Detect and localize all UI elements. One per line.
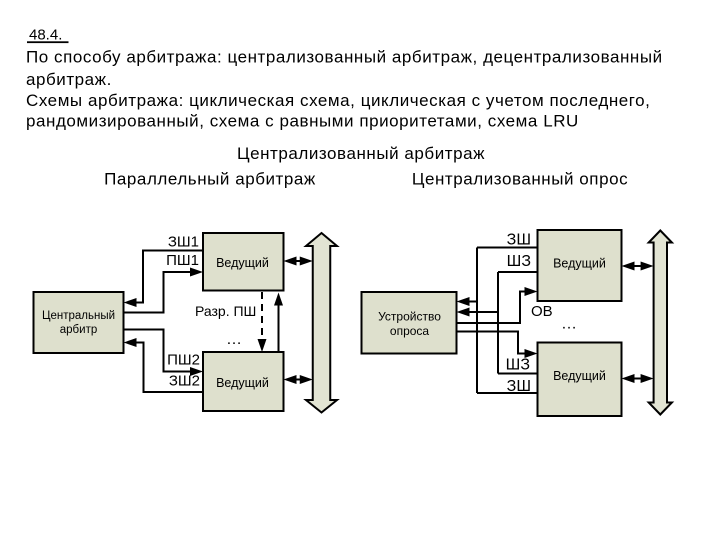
svg-text:…: …: [226, 331, 242, 348]
svg-text:Разр. ПШ: Разр. ПШ: [195, 303, 256, 319]
svg-text:Параллельный арбитраж: Параллельный арбитраж: [104, 170, 316, 189]
svg-text:ЗШ: ЗШ: [507, 378, 531, 395]
svg-text:Ведущий: Ведущий: [553, 257, 606, 271]
svg-text:ПШ2: ПШ2: [167, 352, 200, 369]
svg-text:ШЗ: ШЗ: [507, 253, 531, 270]
svg-text:По способу арбитража: централи: По способу арбитража: централизованный а…: [26, 48, 663, 67]
svg-text:…: …: [561, 316, 577, 333]
svg-text:Ведущий: Ведущий: [216, 376, 269, 390]
svg-text:арбитр: арбитр: [60, 324, 97, 336]
svg-text:48.4.: 48.4.: [29, 27, 62, 44]
svg-text:ОВ: ОВ: [531, 303, 553, 320]
svg-text:ПШ1: ПШ1: [166, 252, 199, 269]
svg-text:арбитраж.: арбитраж.: [26, 70, 112, 89]
svg-text:Устройство: Устройство: [378, 310, 441, 324]
svg-text:рандомизированный, схема с рав: рандомизированный, схема с равными приор…: [26, 112, 579, 131]
svg-text:ЗШ2: ЗШ2: [169, 373, 200, 390]
svg-text:Схемы арбитража: циклическая с: Схемы арбитража: циклическая схема, цикл…: [26, 91, 650, 110]
svg-text:Централизованный опрос: Централизованный опрос: [412, 170, 628, 189]
svg-text:ЗШ1: ЗШ1: [168, 234, 199, 251]
svg-text:опроса: опроса: [390, 324, 430, 338]
svg-text:Центральный: Центральный: [42, 310, 115, 322]
svg-text:Централизованный арбитраж: Централизованный арбитраж: [237, 144, 485, 163]
svg-text:ШЗ: ШЗ: [506, 357, 530, 374]
svg-text:Ведущий: Ведущий: [553, 369, 606, 383]
svg-text:ЗШ: ЗШ: [507, 232, 531, 249]
svg-text:Ведущий: Ведущий: [216, 256, 269, 270]
